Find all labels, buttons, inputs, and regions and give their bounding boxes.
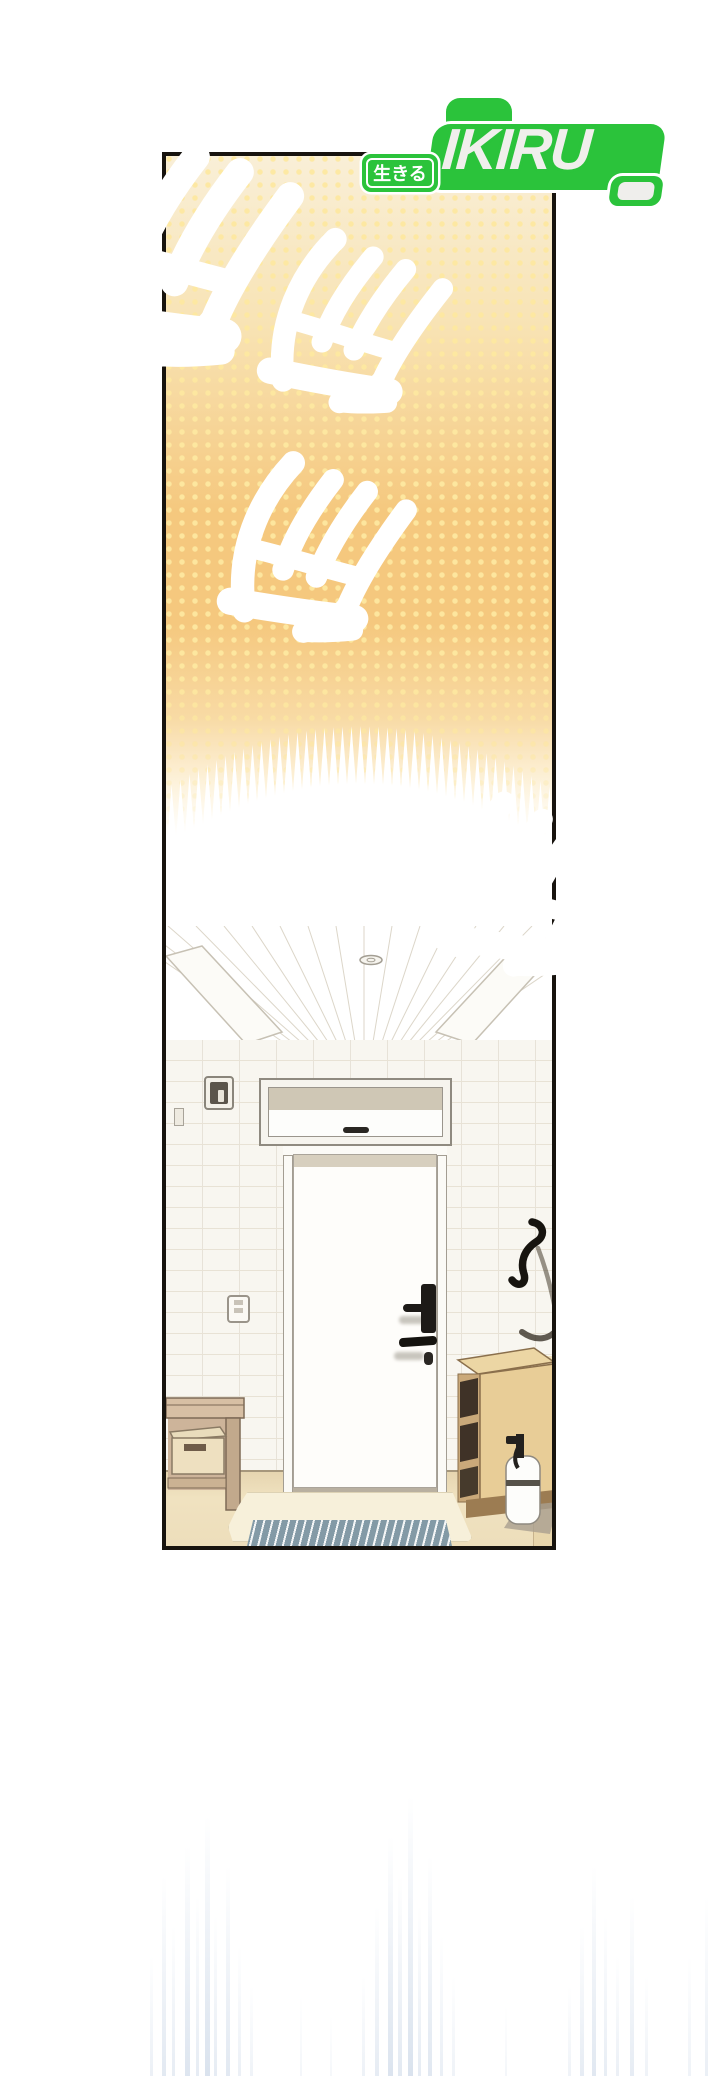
streak-line	[196, 1896, 199, 2076]
streak-line	[592, 1866, 596, 2076]
brand-text: IKIRU	[440, 116, 593, 183]
webtoon-page: IKIRU 生きる	[0, 0, 720, 2076]
light-streaks	[0, 1776, 720, 2076]
light-switch	[227, 1295, 250, 1323]
streak-line	[300, 1996, 302, 2076]
transom-window	[259, 1078, 452, 1146]
doorbell-wire	[174, 1108, 184, 1126]
streak-line	[630, 1896, 634, 2076]
storage-box	[170, 1427, 226, 1474]
streak-line	[150, 1956, 153, 2076]
door-lock-lever	[403, 1304, 429, 1312]
streak-line	[214, 1916, 217, 2076]
streak-line	[375, 1906, 379, 2076]
streak-line	[505, 2006, 507, 2076]
streak-line	[362, 1976, 365, 2076]
streak-line	[440, 1936, 443, 2076]
streak-line	[568, 1986, 571, 2076]
window-handle-icon	[343, 1127, 369, 1133]
doorbell	[204, 1076, 234, 1110]
streak-line	[162, 1876, 166, 2076]
streak-line	[688, 1956, 691, 2076]
ceiling-beam-left	[166, 946, 282, 1044]
streak-line	[205, 1816, 210, 2076]
streak-line	[645, 1976, 648, 2076]
bench	[166, 1392, 246, 1522]
streak-line	[616, 1956, 619, 2076]
streak-line	[408, 1796, 413, 2076]
streak-line	[580, 1926, 584, 2076]
streak-line	[705, 1896, 708, 2076]
ceiling-light-icon	[360, 956, 382, 965]
door-threshold	[293, 1488, 437, 1492]
ikiru-badge: 生きる	[362, 154, 438, 192]
streak-line	[452, 1976, 455, 2076]
spray-bottle	[498, 1428, 556, 1546]
streak-line	[226, 1866, 230, 2076]
streak-line	[428, 1856, 432, 2076]
streak-line	[388, 1836, 393, 2076]
streak-line	[604, 1916, 607, 2076]
badge-text: 生きる	[373, 160, 427, 186]
streak-line	[250, 1986, 253, 2076]
streak-line	[185, 1846, 190, 2076]
ikiru-logo: IKIRU 生きる	[358, 92, 708, 212]
logo-u-tail	[608, 176, 664, 206]
striped-doormat	[247, 1520, 452, 1546]
streak-line	[398, 1876, 402, 2076]
streak-line	[418, 1906, 421, 2076]
streak-line	[172, 1926, 175, 2076]
door-lock-knob	[424, 1352, 433, 1365]
streak-line	[238, 1946, 241, 2076]
streak-line	[330, 2016, 332, 2076]
